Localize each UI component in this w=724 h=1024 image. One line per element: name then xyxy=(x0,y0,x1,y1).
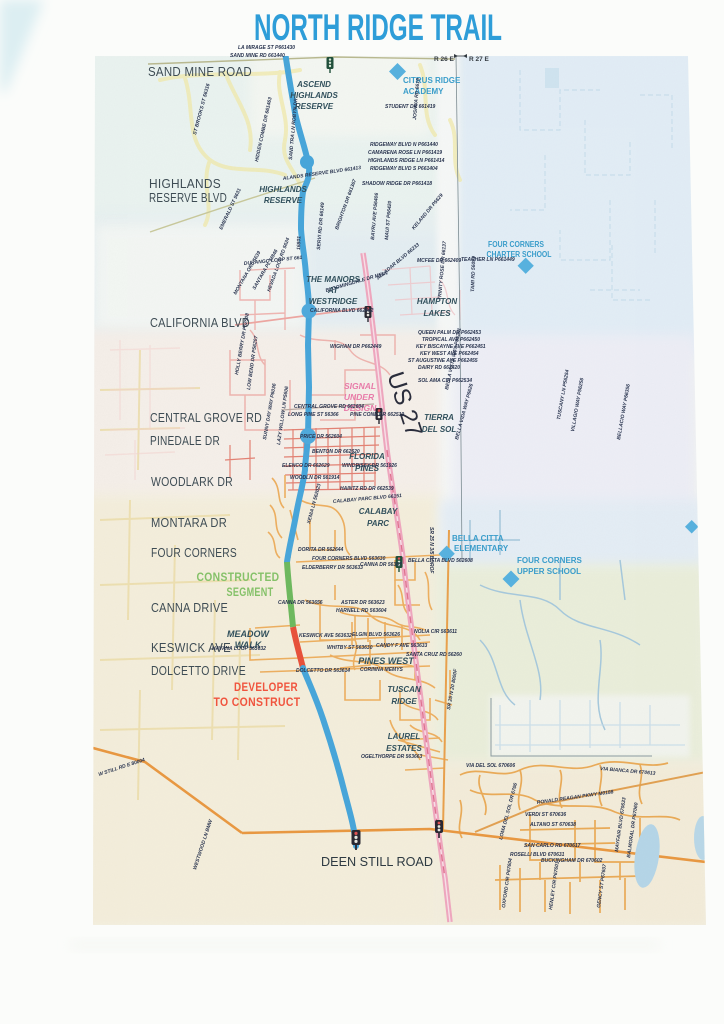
svg-text:ASTER DR 563623: ASTER DR 563623 xyxy=(340,600,385,606)
svg-text:ESTATES: ESTATES xyxy=(386,744,422,753)
svg-text:LONG PINE ST 56366: LONG PINE ST 56366 xyxy=(288,412,339,418)
svg-text:CANNA DR 56367: CANNA DR 56367 xyxy=(360,562,402,568)
svg-text:KESWICK AVE 563632: KESWICK AVE 563632 xyxy=(299,633,352,639)
svg-text:SAND MINE ROAD: SAND MINE ROAD xyxy=(148,65,252,79)
svg-text:LA MIRAGE ST P661430: LA MIRAGE ST P661430 xyxy=(238,45,295,51)
svg-text:RESERVE BLVD: RESERVE BLVD xyxy=(149,191,227,205)
svg-text:CALIFORNIA BLVD: CALIFORNIA BLVD xyxy=(150,316,250,330)
svg-text:CANNA DRIVE: CANNA DRIVE xyxy=(151,601,228,615)
svg-text:HIGHLANDS: HIGHLANDS xyxy=(259,185,307,194)
svg-text:RESERVE: RESERVE xyxy=(295,102,334,111)
svg-text:HAVANA LOOP 563632: HAVANA LOOP 563632 xyxy=(212,646,266,652)
svg-text:SR 25 N 3/5 BDROF: SR 25 N 3/5 BDROF xyxy=(428,527,434,574)
svg-text:SAN CARLO RD 670617: SAN CARLO RD 670617 xyxy=(524,843,581,849)
svg-text:ALTANO ST 670638: ALTANO ST 670638 xyxy=(529,822,576,828)
svg-text:TUSCAN: TUSCAN xyxy=(387,685,421,694)
svg-text:SIGNAL: SIGNAL xyxy=(344,381,376,391)
svg-text:KEY BISCAYNE AVE P662451: KEY BISCAYNE AVE P662451 xyxy=(416,344,486,350)
svg-text:RIDGE: RIDGE xyxy=(391,697,417,706)
svg-text:HIGHLANDS RIDGE LN P661414: HIGHLANDS RIDGE LN P661414 xyxy=(368,158,445,164)
svg-text:SAND MINE RD 661440: SAND MINE RD 661440 xyxy=(230,53,285,59)
svg-text:CENTRAL GROVE RD: CENTRAL GROVE RD xyxy=(150,411,262,425)
svg-text:WINDRISSY DR 561926: WINDRISSY DR 561926 xyxy=(342,463,397,469)
svg-text:BELLA CITTA BLVD 562608: BELLA CITTA BLVD 562608 xyxy=(408,558,473,564)
svg-text:DEEN STILL ROAD: DEEN STILL ROAD xyxy=(321,855,433,869)
svg-text:MEADOW: MEADOW xyxy=(227,629,270,639)
svg-text:CALABAY: CALABAY xyxy=(359,507,398,516)
svg-text:ELGIN BLVD 563626: ELGIN BLVD 563626 xyxy=(352,632,400,638)
svg-text:STUDENT DR 661419: STUDENT DR 661419 xyxy=(385,104,436,110)
svg-text:BENTON DR 662620: BENTON DR 662620 xyxy=(312,449,360,455)
svg-text:BELLA CITTA: BELLA CITTA xyxy=(452,534,504,543)
svg-text:MCFEE DR 662409: MCFEE DR 662409 xyxy=(417,258,461,264)
svg-text:CANNA DR 563656: CANNA DR 563656 xyxy=(278,600,323,606)
svg-text:LAKES: LAKES xyxy=(423,309,451,318)
svg-text:SANTA CRUZ RD 56260: SANTA CRUZ RD 56260 xyxy=(406,652,462,658)
svg-text:WIGHAM DR P662449: WIGHAM DR P662449 xyxy=(330,344,382,350)
svg-text:ELENCO DR 662629: ELENCO DR 662629 xyxy=(282,463,330,469)
svg-text:SEGMENT: SEGMENT xyxy=(227,587,274,599)
svg-text:TIERRA: TIERRA xyxy=(424,413,454,422)
svg-text:DOLCETTO DR 563614: DOLCETTO DR 563614 xyxy=(296,668,350,674)
svg-text:ACADEMY: ACADEMY xyxy=(403,87,444,96)
svg-text:CORINNA MEMYS: CORINNA MEMYS xyxy=(360,667,404,673)
svg-text:WOODLARK DR: WOODLARK DR xyxy=(151,475,233,489)
svg-text:WESTRIDGE: WESTRIDGE xyxy=(309,297,358,306)
svg-text:HARNELL RD 563604: HARNELL RD 563604 xyxy=(336,608,387,614)
svg-text:BUCKINGHAM DR 670602: BUCKINGHAM DR 670602 xyxy=(541,858,603,864)
svg-text:RIDGEWAY BLVD S P661404: RIDGEWAY BLVD S P661404 xyxy=(370,166,438,172)
svg-text:R 26 E: R 26 E xyxy=(434,56,455,63)
svg-text:UNDER: UNDER xyxy=(344,392,375,402)
svg-text:PINEDALE DR: PINEDALE DR xyxy=(150,434,220,448)
svg-text:TROPICAL AVE P662450: TROPICAL AVE P662450 xyxy=(422,337,480,343)
svg-text:CONSTRUCTED: CONSTRUCTED xyxy=(197,572,280,584)
svg-text:HIGHLANDS: HIGHLANDS xyxy=(149,177,221,191)
svg-text:ELEMENTARY: ELEMENTARY xyxy=(454,544,509,553)
svg-text:CALIFORNIA BLVD 662462: CALIFORNIA BLVD 662462 xyxy=(310,308,374,314)
svg-text:CITRUS RIDGE: CITRUS RIDGE xyxy=(403,76,461,85)
svg-text:CAMARENA ROSE LN P661419: CAMARENA ROSE LN P661419 xyxy=(368,150,442,156)
svg-text:DEVELOPER: DEVELOPER xyxy=(234,682,298,694)
svg-text:PRICE DR 562604: PRICE DR 562604 xyxy=(300,434,342,440)
svg-text:16801: 16801 xyxy=(296,236,302,250)
svg-text:RIDGEWAY BLVD N P661440: RIDGEWAY BLVD N P661440 xyxy=(370,142,438,148)
svg-text:DOLCETTO DRIVE: DOLCETTO DRIVE xyxy=(151,664,246,678)
svg-text:NOLIA CIR 563611: NOLIA CIR 563611 xyxy=(414,629,457,635)
svg-text:VERDI ST 670636: VERDI ST 670636 xyxy=(525,812,566,818)
svg-text:NORTH RIDGE TRAIL: NORTH RIDGE TRAIL xyxy=(254,7,502,48)
svg-text:LAUREL: LAUREL xyxy=(388,732,421,741)
svg-text:DORITA DR 562644: DORITA DR 562644 xyxy=(298,547,344,553)
svg-text:DEL SOL: DEL SOL xyxy=(422,425,457,434)
svg-text:QUEEN PALM DR P662453: QUEEN PALM DR P662453 xyxy=(418,330,481,336)
svg-text:KEY WEST AVE P662454: KEY WEST AVE P662454 xyxy=(420,351,479,357)
svg-text:FOUR CORNERS: FOUR CORNERS xyxy=(151,546,237,560)
svg-text:TO CONSTRUCT: TO CONSTRUCT xyxy=(214,697,301,709)
svg-text:TEACHER LN P661449: TEACHER LN P661449 xyxy=(461,257,515,263)
svg-text:FOUR CORNERS: FOUR CORNERS xyxy=(488,240,545,249)
svg-text:CENTRAL GROVE RD 662604: CENTRAL GROVE RD 662604 xyxy=(294,404,364,410)
svg-text:RESERVE: RESERVE xyxy=(264,196,303,205)
svg-text:UPPER SCHOOL: UPPER SCHOOL xyxy=(517,567,581,576)
svg-text:HAINTZ RD DR 662539: HAINTZ RD DR 662539 xyxy=(340,486,394,492)
svg-text:PARC: PARC xyxy=(367,519,389,528)
svg-text:WHITBY ST 563630: WHITBY ST 563630 xyxy=(327,645,373,651)
svg-text:TAMI RD 56099: TAMI RD 56099 xyxy=(470,256,477,292)
svg-text:MONTARA DR: MONTARA DR xyxy=(151,516,227,530)
svg-text:VIA DEL SOL 670606: VIA DEL SOL 670606 xyxy=(466,763,515,769)
svg-text:ASCEND: ASCEND xyxy=(296,80,331,89)
svg-text:FOUR CORNERS: FOUR CORNERS xyxy=(517,556,583,565)
svg-text:R 27 E: R 27 E xyxy=(469,56,490,63)
svg-text:CANDY F AVE 563633: CANDY F AVE 563633 xyxy=(376,643,428,649)
svg-text:SHADOW RIDGE DR P661418: SHADOW RIDGE DR P661418 xyxy=(362,181,432,187)
svg-text:WOODLN DR 561914: WOODLN DR 561914 xyxy=(290,475,340,481)
svg-text:PINE CONE DR 662519: PINE CONE DR 662519 xyxy=(350,412,404,418)
svg-text:ELDERBERRY DR 563633: ELDERBERRY DR 563633 xyxy=(302,565,363,571)
svg-text:OGELTHORPE DR 563663: OGELTHORPE DR 563663 xyxy=(361,754,423,760)
svg-text:ST AUGUSTINE AVE P662455: ST AUGUSTINE AVE P662455 xyxy=(408,358,478,364)
